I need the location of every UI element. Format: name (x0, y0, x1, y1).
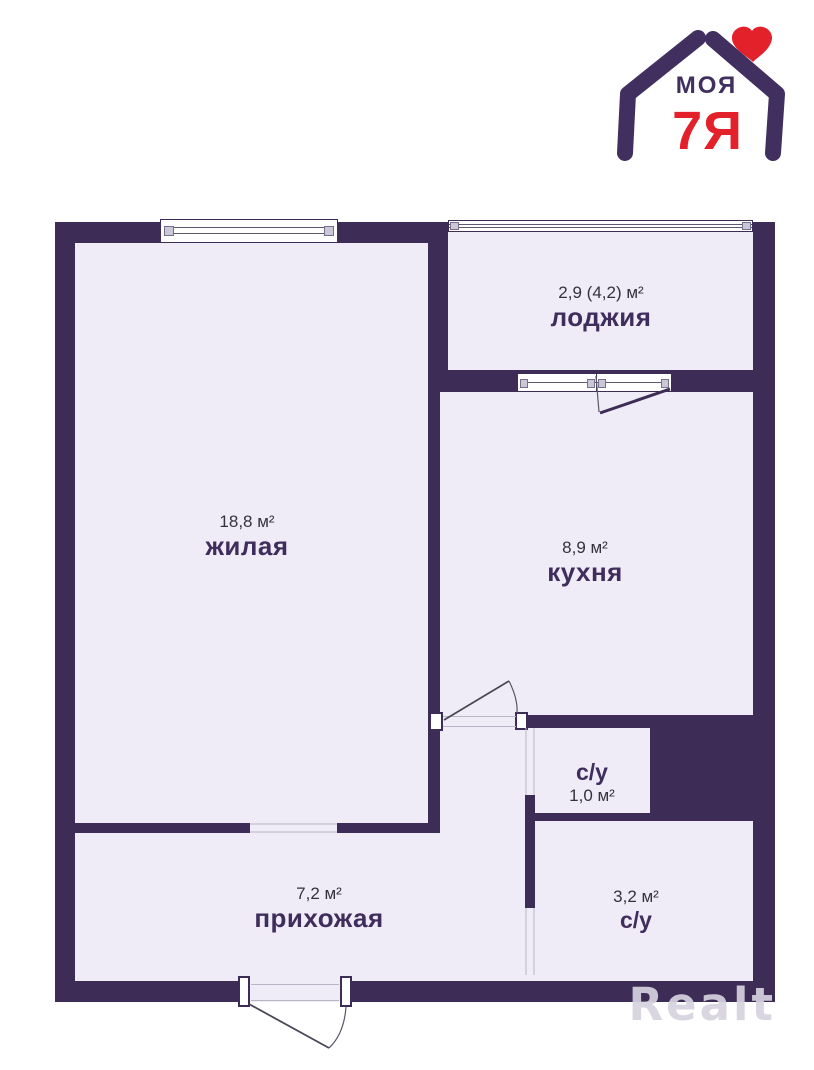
room-name: кухня (547, 558, 623, 587)
floor-plan-canvas: 2,9 (4,2) м² лоджия 18,8 м² жилая 8,9 м²… (0, 0, 814, 1070)
room-area: 18,8 м² (205, 511, 288, 532)
room-name: лоджия (551, 303, 652, 332)
room-area: 8,9 м² (547, 537, 623, 558)
room-label-living: 18,8 м² жилая (205, 511, 288, 561)
realt-watermark: Realt (600, 978, 776, 1031)
room-area: 2,9 (4,2) м² (551, 282, 652, 303)
room-label-kitchen: 8,9 м² кухня (547, 537, 623, 587)
room-label-loggia: 2,9 (4,2) м² лоджия (551, 282, 652, 332)
room-name: с/у (569, 759, 615, 785)
room-name: прихожая (254, 904, 383, 933)
logo-brand-top: МОЯ (654, 72, 759, 100)
agency-logo: МОЯ 7Я (600, 10, 810, 180)
room-name: жилая (205, 532, 288, 561)
room-area: 1,0 м² (569, 786, 615, 807)
room-name: с/у (613, 907, 659, 933)
logo-brand-bottom: 7Я (640, 100, 775, 162)
room-label-wc-small: с/у 1,0 м² (569, 759, 615, 807)
room-label-hallway: 7,2 м² прихожая (254, 883, 383, 933)
room-label-wc-big: 3,2 м² с/у (613, 886, 659, 934)
room-area: 7,2 м² (254, 883, 383, 904)
room-area: 3,2 м² (613, 886, 659, 907)
